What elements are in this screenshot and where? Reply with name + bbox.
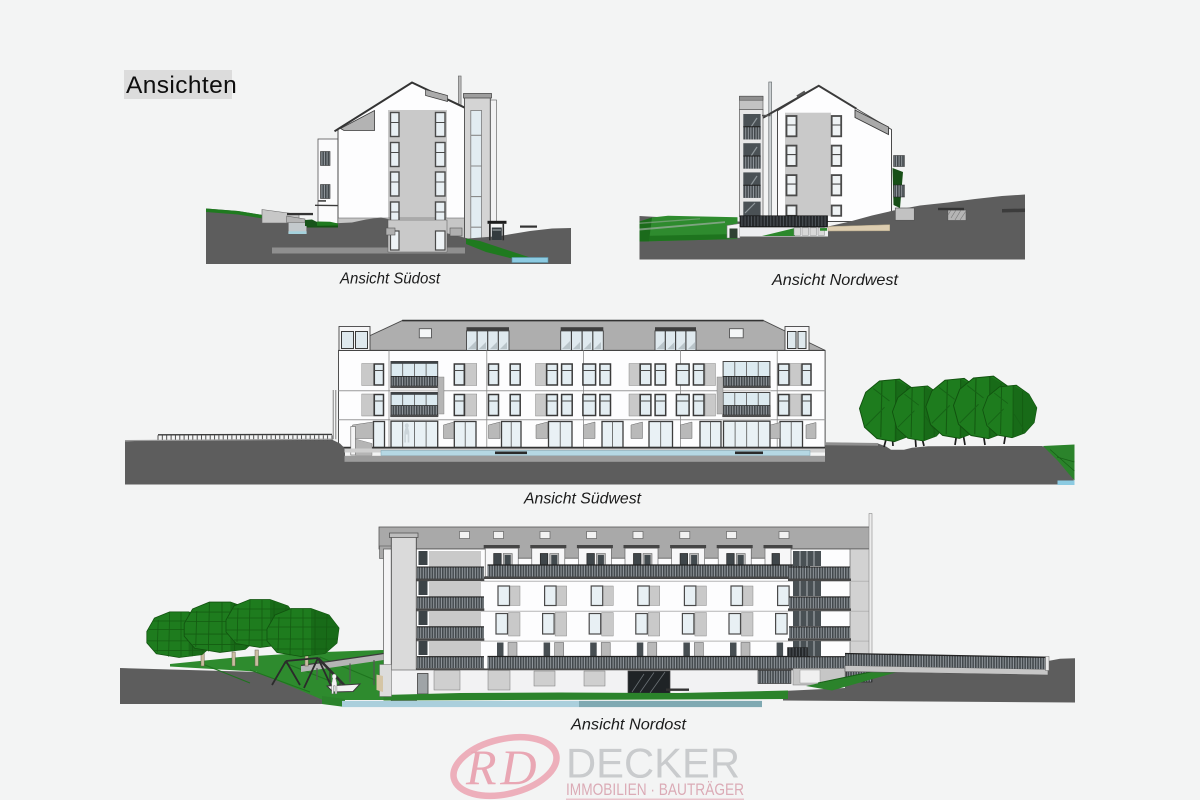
svg-text:Ansicht Südost: Ansicht Südost [339, 271, 440, 288]
svg-text:RD: RD [465, 739, 541, 795]
svg-text:IMMOBILIEN · BAUTRÄGER: IMMOBILIEN · BAUTRÄGER [566, 780, 744, 799]
svg-text:Ansicht Nordwest: Ansicht Nordwest [771, 272, 899, 289]
svg-text:Ansichten: Ansichten [126, 72, 237, 99]
svg-text:Ansicht Nordost: Ansicht Nordost [570, 717, 687, 734]
svg-text:Ansicht Südwest: Ansicht Südwest [523, 491, 642, 508]
